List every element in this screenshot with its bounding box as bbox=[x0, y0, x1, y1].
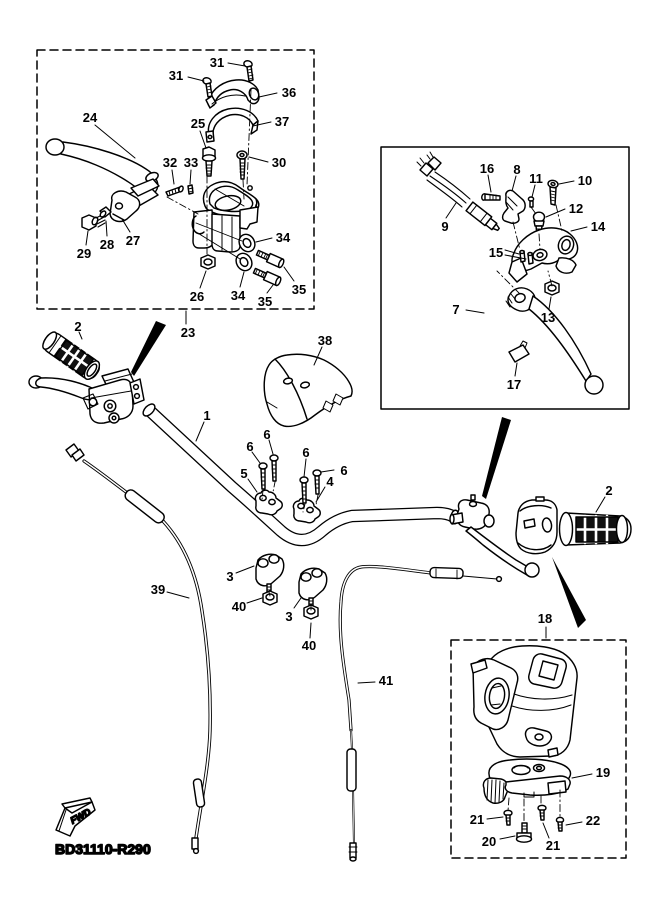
svg-text:6: 6 bbox=[302, 445, 309, 460]
svg-text:8: 8 bbox=[513, 162, 520, 177]
svg-text:14: 14 bbox=[591, 219, 606, 234]
svg-text:39: 39 bbox=[151, 582, 165, 597]
svg-text:9: 9 bbox=[441, 219, 448, 234]
svg-text:3: 3 bbox=[226, 569, 233, 584]
svg-text:35: 35 bbox=[292, 282, 306, 297]
svg-text:4: 4 bbox=[326, 474, 334, 489]
svg-text:37: 37 bbox=[275, 114, 289, 129]
svg-text:18: 18 bbox=[538, 611, 552, 626]
svg-text:7: 7 bbox=[452, 302, 459, 317]
svg-text:32: 32 bbox=[163, 155, 177, 170]
svg-text:34: 34 bbox=[231, 288, 246, 303]
svg-text:BD31110-R290: BD31110-R290 bbox=[55, 841, 151, 857]
svg-text:19: 19 bbox=[596, 765, 610, 780]
svg-text:21: 21 bbox=[546, 838, 560, 853]
svg-text:25: 25 bbox=[191, 116, 205, 131]
svg-text:33: 33 bbox=[184, 155, 198, 170]
svg-text:15: 15 bbox=[489, 245, 503, 260]
svg-text:40: 40 bbox=[302, 638, 316, 653]
svg-text:40: 40 bbox=[232, 599, 246, 614]
svg-text:28: 28 bbox=[100, 237, 114, 252]
svg-text:26: 26 bbox=[190, 289, 204, 304]
svg-text:20: 20 bbox=[482, 834, 496, 849]
svg-text:1: 1 bbox=[203, 408, 210, 423]
svg-text:6: 6 bbox=[340, 463, 347, 478]
svg-text:6: 6 bbox=[246, 439, 253, 454]
svg-text:30: 30 bbox=[272, 155, 286, 170]
svg-text:17: 17 bbox=[507, 377, 521, 392]
svg-text:13: 13 bbox=[541, 310, 555, 325]
svg-text:38: 38 bbox=[318, 333, 332, 348]
svg-text:3: 3 bbox=[285, 609, 292, 624]
svg-text:6: 6 bbox=[263, 427, 270, 442]
svg-text:36: 36 bbox=[282, 85, 296, 100]
svg-text:21: 21 bbox=[470, 812, 484, 827]
svg-text:27: 27 bbox=[126, 233, 140, 248]
svg-text:22: 22 bbox=[586, 813, 600, 828]
svg-text:16: 16 bbox=[480, 161, 494, 176]
svg-text:34: 34 bbox=[276, 230, 291, 245]
svg-text:31: 31 bbox=[169, 68, 183, 83]
svg-text:2: 2 bbox=[74, 319, 81, 334]
svg-text:10: 10 bbox=[578, 173, 592, 188]
svg-text:29: 29 bbox=[77, 246, 91, 261]
svg-text:12: 12 bbox=[569, 201, 583, 216]
svg-text:41: 41 bbox=[379, 673, 393, 688]
svg-text:35: 35 bbox=[258, 294, 272, 309]
svg-text:31: 31 bbox=[210, 55, 224, 70]
svg-text:11: 11 bbox=[529, 171, 543, 186]
svg-text:5: 5 bbox=[240, 466, 247, 481]
svg-text:24: 24 bbox=[83, 110, 98, 125]
svg-text:2: 2 bbox=[605, 483, 612, 498]
svg-text:23: 23 bbox=[181, 325, 195, 340]
